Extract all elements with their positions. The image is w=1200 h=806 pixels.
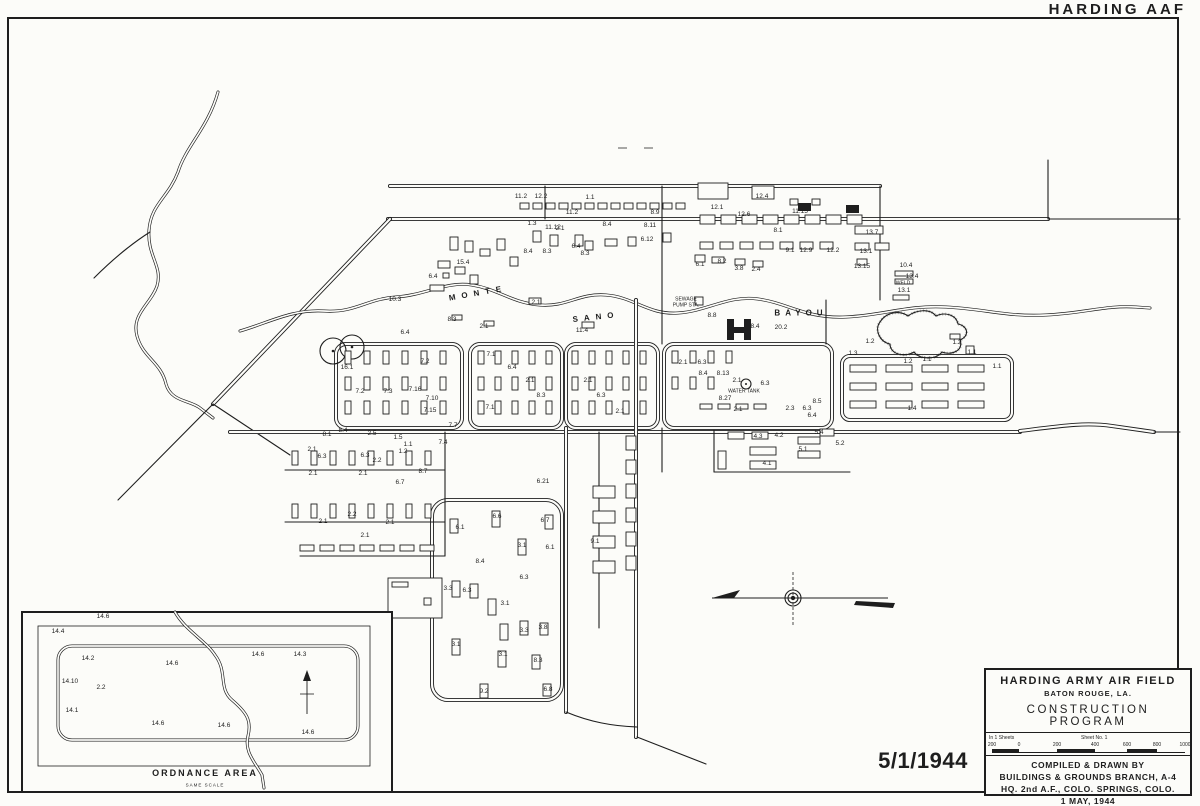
building-footprint <box>529 377 535 390</box>
building-footprint <box>826 215 841 224</box>
building-footprint <box>750 461 776 469</box>
building-footprint <box>593 536 615 548</box>
title-block: HARDING ARMY AIR FIELD BATON ROUGE, LA. … <box>984 668 1192 796</box>
credit-line-2: BUILDINGS & GROUNDS BRANCH, A-4 <box>986 772 1190 782</box>
building-footprint <box>855 226 883 234</box>
building-footprint <box>700 404 712 409</box>
building-footprint <box>695 255 705 262</box>
building-footprint <box>950 334 960 339</box>
building-footprint <box>850 383 876 390</box>
building-footprint <box>575 235 583 246</box>
building-footprint <box>663 203 672 209</box>
scale-bar: In 1 Sheets Sheet No. 1 2000200400600800… <box>986 732 1190 756</box>
building-footprint <box>512 377 518 390</box>
building-footprint <box>958 383 984 390</box>
building-footprint <box>798 451 820 458</box>
building-footprint <box>387 451 393 465</box>
building-footprint <box>626 484 636 498</box>
building-footprint <box>497 239 505 250</box>
building-footprint <box>626 556 636 570</box>
road-inner-line <box>136 92 218 418</box>
title-block-program: CONSTRUCTION PROGRAM <box>986 704 1190 728</box>
building-footprint <box>598 203 607 209</box>
building-footprint <box>450 519 458 533</box>
building-footprint <box>753 261 763 267</box>
building-footprint <box>966 346 974 354</box>
building-footprint <box>736 404 748 409</box>
building-footprint <box>330 451 336 465</box>
building-footprint <box>800 242 813 249</box>
theater-building-icon <box>727 319 751 340</box>
building-footprint <box>805 215 820 224</box>
road-inner-line <box>664 344 832 428</box>
building-footprint <box>421 351 427 364</box>
water-tower-icons <box>320 273 751 389</box>
building-footprint <box>349 451 355 465</box>
building-footprint <box>922 401 948 408</box>
building-footprint <box>559 203 568 209</box>
building-footprint <box>875 243 889 250</box>
building-footprint <box>360 545 374 551</box>
building-footprint <box>470 275 478 284</box>
building-footprint <box>572 401 578 414</box>
building-footprint <box>292 451 298 465</box>
building-footprint <box>593 511 615 523</box>
scale-bar-segment <box>1057 749 1095 752</box>
compass-rose-icon <box>712 572 895 625</box>
building-footprint <box>484 321 494 326</box>
building-footprint <box>857 259 867 265</box>
building-footprint <box>532 655 540 669</box>
building-footprint <box>546 351 552 364</box>
building-footprint <box>383 401 389 414</box>
building-footprint <box>364 377 370 390</box>
building-footprint <box>492 511 500 527</box>
building-footprint <box>798 437 820 444</box>
building-footprint <box>540 623 548 635</box>
inset-title: ORDNANCE AREA <box>152 768 258 778</box>
building-footprint <box>349 504 355 518</box>
building-footprint <box>718 451 726 469</box>
building-footprint <box>425 451 431 465</box>
building-footprint <box>690 377 696 389</box>
building-footprint <box>450 237 458 250</box>
building-footprint <box>470 584 478 598</box>
building-footprint <box>495 377 501 390</box>
building-footprint <box>886 365 912 372</box>
scale-tick-label: 400 <box>1091 742 1099 748</box>
building-footprint <box>345 401 351 414</box>
building-footprint <box>663 233 671 242</box>
building-footprint <box>512 351 518 364</box>
building-footprint <box>922 383 948 390</box>
building-footprint <box>340 545 354 551</box>
building-footprint <box>495 401 501 414</box>
scanned-map-page: MONTE SANO BAYOU 11.212.21.111.212.112.4… <box>0 0 1200 800</box>
building-footprint <box>958 401 984 408</box>
building-footprint <box>650 203 659 209</box>
building-footprint <box>735 259 745 265</box>
building-footprint <box>529 351 535 364</box>
building-footprint <box>763 215 778 224</box>
building-footprint <box>420 545 434 551</box>
building-footprint <box>700 215 715 224</box>
building-footprint <box>543 684 551 696</box>
building-footprint <box>345 377 351 390</box>
building-footprint <box>798 203 811 211</box>
building-footprint <box>478 377 484 390</box>
building-footprint <box>465 241 473 252</box>
building-footprint <box>626 460 636 474</box>
building-footprint <box>368 451 374 465</box>
building-footprint <box>452 639 460 655</box>
scale-bar-segment <box>1019 749 1057 752</box>
building-footprint <box>640 401 646 414</box>
scale-bar-segment <box>1127 749 1157 752</box>
scale-bar-segment <box>1157 749 1185 752</box>
building-footprint <box>606 401 612 414</box>
building-footprint <box>780 242 793 249</box>
building-footprint <box>700 242 713 249</box>
building-footprint <box>623 401 629 414</box>
building-footprint <box>402 401 408 414</box>
building-footprint <box>368 504 374 518</box>
sheets-count-label: In 1 Sheets <box>989 735 1014 741</box>
building-footprint <box>425 504 431 518</box>
building-footprint <box>605 239 617 246</box>
building-footprint <box>623 377 629 390</box>
building-footprint <box>311 504 317 518</box>
building-footprint <box>820 429 834 436</box>
building-footprint <box>438 261 450 268</box>
scale-tick-label: 1000 <box>1179 742 1190 748</box>
building-footprint <box>406 504 412 518</box>
building-footprint <box>593 486 615 498</box>
building-footprint <box>402 351 408 364</box>
building-footprint <box>846 205 859 213</box>
building-footprint <box>421 377 427 390</box>
building-footprint <box>895 279 913 284</box>
scale-bar-segment <box>992 749 1019 752</box>
building-footprint <box>760 242 773 249</box>
building-footprint <box>383 351 389 364</box>
building-footprint <box>690 351 696 363</box>
building-footprint <box>572 377 578 390</box>
building-footprint <box>958 365 984 372</box>
building-footprint <box>589 351 595 364</box>
building-footprint <box>440 377 446 390</box>
building-footprint <box>740 242 753 249</box>
building-footprint <box>712 257 724 263</box>
title-block-location: BATON ROUGE, LA. <box>986 689 1190 698</box>
building-footprint <box>589 401 595 414</box>
title-block-name: HARDING ARMY AIR FIELD <box>986 675 1190 687</box>
building-footprint <box>893 295 909 300</box>
building-footprint <box>855 243 869 250</box>
inset-subtitle: SAME SCALE <box>186 783 225 788</box>
sheet-number-label: Sheet No. 1 <box>1081 735 1107 741</box>
building-footprint <box>546 401 552 414</box>
building-footprint <box>455 267 465 274</box>
building-footprint <box>672 377 678 389</box>
building-footprint <box>572 351 578 364</box>
building-footprint <box>387 504 393 518</box>
sheet-corner-label: HARDING AAF <box>1049 1 1186 18</box>
building-footprint <box>406 451 412 465</box>
building-footprint <box>721 215 736 224</box>
building-footprint <box>510 257 518 266</box>
building-footprint <box>546 377 552 390</box>
building-footprint <box>480 684 488 698</box>
building-footprint <box>529 401 535 414</box>
building-footprint <box>300 545 314 551</box>
building-footprint <box>606 351 612 364</box>
building-footprint <box>611 203 620 209</box>
building-footprint <box>402 377 408 390</box>
building-footprint <box>545 515 553 529</box>
building-footprint <box>292 504 298 518</box>
building-footprint <box>480 249 490 256</box>
building-footprint <box>500 624 508 640</box>
scale-bar-segments <box>992 749 1185 753</box>
building-footprint <box>606 377 612 390</box>
building-footprint <box>626 508 636 522</box>
building-footprint <box>628 237 636 246</box>
ordnance-inset-map <box>22 612 392 792</box>
building-footprint <box>498 651 506 667</box>
building-footprint <box>752 186 774 199</box>
credit-line-1: COMPILED & DRAWN BY <box>986 760 1190 770</box>
building-footprint <box>392 582 408 587</box>
scale-tick-label: 200 <box>988 742 996 748</box>
building-footprint <box>850 401 876 408</box>
scale-bar-segment <box>1095 749 1127 752</box>
building-footprint <box>364 351 370 364</box>
building-footprint <box>626 436 636 450</box>
building-footprint <box>886 401 912 408</box>
building-footprint <box>812 199 820 205</box>
building-footprint <box>698 183 728 199</box>
building-footprint <box>520 621 528 635</box>
building-footprint <box>585 203 594 209</box>
building-footprint <box>311 451 317 465</box>
scale-tick-label: 800 <box>1153 742 1161 748</box>
building-footprint <box>708 377 714 389</box>
building-footprint <box>533 203 542 209</box>
building-footprint <box>784 215 799 224</box>
building-footprint <box>478 351 484 364</box>
scale-tick-label: 200 <box>1053 742 1061 748</box>
building-footprint <box>623 351 629 364</box>
building-footprint <box>676 203 685 209</box>
building-footprint <box>895 271 913 276</box>
credit-line-4: 1 MAY, 1944 <box>986 796 1190 806</box>
building-footprint <box>850 365 876 372</box>
building-footprint <box>640 351 646 364</box>
building-footprint <box>478 401 484 414</box>
building-footprint <box>520 203 529 209</box>
building-footprint <box>695 297 703 305</box>
building-footprint <box>452 581 460 597</box>
building-footprint <box>440 401 446 414</box>
building-footprint <box>452 315 462 320</box>
building-footprint <box>585 241 593 250</box>
road-inner-line <box>240 284 1150 331</box>
building-footprint <box>922 365 948 372</box>
building-footprint <box>572 203 581 209</box>
date-stamp: 5/1/1944 <box>858 748 988 774</box>
building-footprint <box>726 351 732 363</box>
building-footprint <box>640 377 646 390</box>
building-footprint <box>440 351 446 364</box>
building-footprint <box>626 532 636 546</box>
scale-tick-label: 0 <box>1018 742 1021 748</box>
building-footprint <box>380 545 394 551</box>
building-footprint <box>400 545 414 551</box>
building-footprint <box>430 285 444 291</box>
building-footprint <box>518 539 526 555</box>
building-footprint <box>589 377 595 390</box>
building-footprint <box>529 298 541 304</box>
building-footprint <box>512 401 518 414</box>
building-footprint <box>383 377 389 390</box>
building-footprint <box>593 561 615 573</box>
building-footprint <box>790 199 798 205</box>
building-footprint <box>718 404 730 409</box>
building-footprint <box>345 351 351 364</box>
building-footprint <box>330 504 336 518</box>
building-footprint <box>820 242 833 249</box>
building-footprint <box>533 231 541 242</box>
building-footprint <box>742 215 757 224</box>
building-footprint <box>546 203 555 209</box>
building-footprint <box>754 404 766 409</box>
building-footprint <box>624 203 633 209</box>
building-footprint <box>421 401 427 414</box>
building-footprint <box>320 545 334 551</box>
building-footprint <box>720 242 733 249</box>
scale-tick-label: 600 <box>1123 742 1131 748</box>
building-footprint <box>672 351 678 363</box>
building-footprint <box>752 432 768 439</box>
building-footprint <box>708 351 714 363</box>
building-footprint <box>847 215 862 224</box>
building-footprint <box>550 235 558 246</box>
building-footprint <box>495 351 501 364</box>
building-footprint <box>488 599 496 615</box>
building-footprint <box>364 401 370 414</box>
building-footprint <box>750 447 776 455</box>
building-footprint <box>582 322 594 328</box>
building-footprint <box>886 383 912 390</box>
building-footprint <box>424 598 431 605</box>
credit-line-3: HQ. 2nd A.F., COLO. SPRINGS, COLO. <box>986 784 1190 794</box>
building-footprint <box>637 203 646 209</box>
building-footprint <box>728 432 744 439</box>
